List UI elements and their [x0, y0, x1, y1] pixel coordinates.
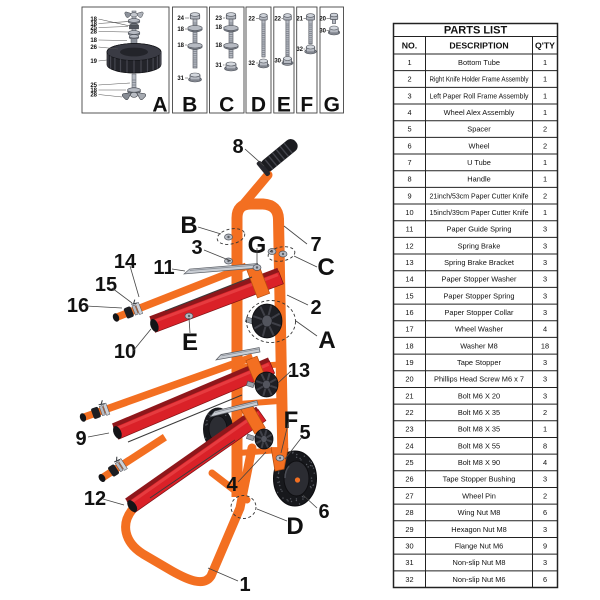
svg-text:A: A	[152, 94, 167, 117]
svg-text:1: 1	[543, 158, 547, 167]
svg-text:Bolt M8 X 55: Bolt M8 X 55	[458, 441, 500, 450]
svg-text:8: 8	[543, 441, 547, 450]
svg-text:26: 26	[405, 475, 413, 484]
svg-text:15: 15	[405, 291, 413, 300]
svg-text:1: 1	[543, 75, 547, 84]
svg-text:18: 18	[177, 43, 184, 49]
svg-text:2: 2	[543, 191, 547, 200]
svg-text:D: D	[286, 513, 303, 540]
svg-text:Spring Brake: Spring Brake	[458, 241, 501, 250]
svg-text:Bolt M8 X 90: Bolt M8 X 90	[458, 458, 500, 467]
svg-text:31: 31	[177, 76, 184, 82]
svg-text:6: 6	[318, 501, 329, 523]
svg-text:18: 18	[215, 43, 222, 49]
svg-text:3: 3	[543, 525, 547, 534]
svg-text:17: 17	[405, 325, 413, 334]
svg-text:2: 2	[543, 491, 547, 500]
svg-text:1: 1	[543, 208, 547, 217]
svg-text:C: C	[219, 94, 234, 117]
svg-text:28: 28	[90, 93, 97, 99]
svg-text:21: 21	[296, 17, 303, 23]
svg-text:U Tube: U Tube	[467, 158, 491, 167]
svg-text:31: 31	[405, 558, 413, 567]
svg-text:Washer M8: Washer M8	[460, 341, 498, 350]
svg-text:3: 3	[543, 358, 547, 367]
svg-text:PARTS LIST: PARTS LIST	[444, 24, 508, 36]
svg-text:3: 3	[543, 275, 547, 284]
svg-text:Wheel Washer: Wheel Washer	[455, 325, 504, 334]
svg-text:B: B	[180, 212, 197, 239]
svg-text:3: 3	[543, 225, 547, 234]
svg-text:NO.: NO.	[402, 40, 417, 50]
svg-text:5: 5	[299, 422, 310, 444]
svg-text:2: 2	[543, 141, 547, 150]
svg-text:3: 3	[407, 91, 411, 100]
svg-text:3: 3	[543, 375, 547, 384]
svg-text:G: G	[324, 94, 340, 117]
svg-text:19: 19	[90, 59, 97, 65]
svg-text:3: 3	[543, 558, 547, 567]
svg-text:Q'TY: Q'TY	[535, 40, 555, 50]
svg-text:19: 19	[405, 358, 413, 367]
svg-text:10: 10	[405, 208, 413, 217]
svg-text:4: 4	[407, 108, 411, 117]
svg-text:Wing Nut M8: Wing Nut M8	[458, 508, 501, 517]
svg-text:2: 2	[310, 297, 321, 319]
svg-text:Wheel Alex Assembly: Wheel Alex Assembly	[444, 108, 515, 117]
svg-text:7: 7	[310, 234, 321, 256]
svg-text:13: 13	[405, 258, 413, 267]
svg-text:3: 3	[543, 308, 547, 317]
svg-text:1: 1	[543, 175, 547, 184]
svg-text:12: 12	[405, 241, 413, 250]
svg-text:F: F	[300, 94, 313, 117]
svg-text:2: 2	[407, 75, 411, 84]
svg-text:3: 3	[543, 475, 547, 484]
svg-text:4: 4	[543, 325, 547, 334]
svg-text:22: 22	[405, 408, 413, 417]
svg-text:1: 1	[407, 58, 411, 67]
svg-text:Flange Nut M6: Flange Nut M6	[455, 541, 503, 550]
svg-text:Paper Guide Spring: Paper Guide Spring	[447, 225, 512, 234]
svg-text:3: 3	[543, 258, 547, 267]
svg-text:14: 14	[114, 251, 137, 273]
svg-text:22: 22	[248, 17, 255, 23]
svg-text:Spacer: Spacer	[467, 125, 491, 134]
svg-text:3: 3	[191, 237, 202, 259]
svg-text:13: 13	[288, 360, 310, 382]
svg-text:24: 24	[405, 441, 413, 450]
svg-text:12: 12	[84, 488, 106, 510]
svg-text:28: 28	[90, 30, 97, 36]
svg-text:31: 31	[215, 63, 222, 69]
svg-text:6: 6	[543, 508, 547, 517]
svg-text:D: D	[251, 94, 266, 117]
svg-text:Paper Stopper Collar: Paper Stopper Collar	[444, 308, 514, 317]
svg-text:DESCRIPTION: DESCRIPTION	[449, 40, 508, 50]
svg-text:18: 18	[405, 341, 413, 350]
svg-text:8: 8	[407, 175, 411, 184]
svg-text:Tape Stopper: Tape Stopper	[457, 358, 502, 367]
svg-text:Bolt M6 X 35: Bolt M6 X 35	[458, 408, 500, 417]
svg-text:6: 6	[407, 141, 411, 150]
svg-text:1: 1	[543, 58, 547, 67]
svg-text:18: 18	[541, 341, 549, 350]
svg-text:4: 4	[543, 458, 547, 467]
svg-text:Bottom Tube: Bottom Tube	[458, 58, 500, 67]
svg-text:3: 3	[543, 241, 547, 250]
svg-text:26: 26	[90, 45, 97, 51]
svg-text:3: 3	[543, 291, 547, 300]
svg-text:Hexagon Nut M8: Hexagon Nut M8	[451, 525, 506, 534]
svg-text:C: C	[317, 254, 334, 281]
svg-text:32: 32	[405, 575, 413, 584]
svg-text:20: 20	[405, 375, 413, 384]
svg-text:30: 30	[274, 59, 281, 65]
svg-text:2: 2	[543, 408, 547, 417]
svg-text:28: 28	[405, 508, 413, 517]
svg-text:15: 15	[95, 274, 117, 296]
svg-text:B: B	[182, 94, 197, 117]
svg-text:16: 16	[405, 308, 413, 317]
svg-text:Bolt M6 X 20: Bolt M6 X 20	[458, 391, 500, 400]
svg-text:1: 1	[543, 91, 547, 100]
svg-text:23: 23	[215, 16, 222, 22]
svg-text:Right Knife Holder Frame Assem: Right Knife Holder Frame Assembly	[430, 75, 529, 84]
svg-text:11: 11	[406, 225, 414, 234]
svg-text:11: 11	[153, 257, 174, 279]
svg-text:29: 29	[405, 525, 413, 534]
svg-text:Phillips Head Screw M6 x 7: Phillips Head Screw M6 x 7	[434, 375, 524, 384]
svg-text:Wheel: Wheel	[469, 141, 490, 150]
svg-text:15inch/39cm Paper Cutter Knife: 15inch/39cm Paper Cutter Knife	[430, 208, 529, 217]
svg-text:Wheel Pin: Wheel Pin	[462, 491, 496, 500]
svg-text:8: 8	[232, 136, 243, 158]
svg-text:E: E	[277, 94, 291, 117]
svg-text:Paper Stopper Washer: Paper Stopper Washer	[442, 275, 517, 284]
svg-text:Left Paper Roll Frame Assembly: Left Paper Roll Frame Assembly	[430, 91, 529, 100]
svg-text:27: 27	[405, 491, 413, 500]
svg-text:1: 1	[543, 108, 547, 117]
svg-text:Non-slip Nut M6: Non-slip Nut M6	[453, 575, 506, 584]
svg-text:1: 1	[239, 574, 250, 596]
svg-text:30: 30	[405, 541, 413, 550]
svg-text:4: 4	[226, 474, 238, 496]
svg-text:30: 30	[319, 29, 326, 35]
svg-text:3: 3	[543, 391, 547, 400]
svg-text:7: 7	[407, 158, 411, 167]
svg-text:F: F	[284, 407, 299, 434]
svg-text:20: 20	[319, 17, 326, 23]
svg-text:9: 9	[543, 541, 547, 550]
svg-text:1: 1	[543, 425, 547, 434]
svg-text:16: 16	[67, 295, 89, 317]
svg-text:Spring Brake Bracket: Spring Brake Bracket	[444, 258, 514, 267]
svg-text:23: 23	[405, 425, 413, 434]
svg-text:6: 6	[543, 575, 547, 584]
svg-text:25: 25	[405, 458, 413, 467]
svg-text:18: 18	[90, 38, 97, 44]
svg-text:A: A	[318, 327, 335, 354]
svg-text:21inch/53cm Paper Cutter Knife: 21inch/53cm Paper Cutter Knife	[430, 191, 529, 200]
svg-text:18: 18	[215, 25, 222, 31]
svg-text:32: 32	[248, 61, 255, 67]
svg-text:22: 22	[274, 17, 281, 23]
svg-text:9: 9	[407, 191, 411, 200]
svg-text:Non-slip Nut M8: Non-slip Nut M8	[453, 558, 506, 567]
svg-text:2: 2	[543, 125, 547, 134]
svg-text:Paper Stopper Spring: Paper Stopper Spring	[443, 291, 514, 300]
svg-text:5: 5	[407, 125, 411, 134]
svg-text:Handle: Handle	[467, 175, 490, 184]
svg-text:14: 14	[405, 275, 413, 284]
svg-text:10: 10	[114, 341, 136, 363]
svg-text:24: 24	[177, 16, 184, 22]
svg-text:32: 32	[296, 47, 303, 53]
svg-text:Bolt M8 X 35: Bolt M8 X 35	[458, 425, 500, 434]
svg-text:E: E	[182, 329, 198, 356]
svg-text:18: 18	[177, 27, 184, 33]
svg-text:Tape Stopper Bushing: Tape Stopper Bushing	[443, 475, 516, 484]
svg-text:9: 9	[75, 428, 86, 450]
svg-text:21: 21	[405, 391, 413, 400]
